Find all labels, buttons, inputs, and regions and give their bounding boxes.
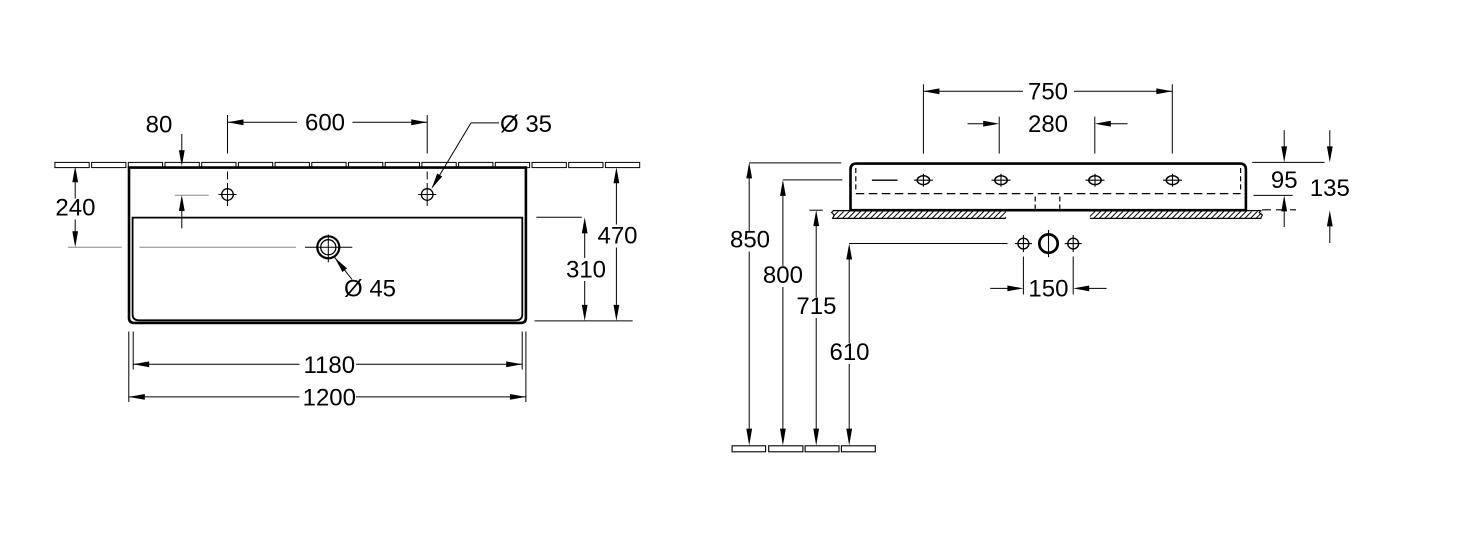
svg-text:715: 715 bbox=[796, 293, 836, 320]
svg-text:240: 240 bbox=[55, 195, 95, 222]
svg-text:800: 800 bbox=[763, 262, 803, 289]
svg-text:1180: 1180 bbox=[303, 352, 355, 379]
svg-text:80: 80 bbox=[146, 111, 173, 138]
svg-text:470: 470 bbox=[597, 223, 637, 250]
svg-text:150: 150 bbox=[1028, 276, 1068, 303]
svg-text:750: 750 bbox=[1028, 79, 1068, 106]
svg-text:280: 280 bbox=[1028, 111, 1068, 138]
svg-text:Ø 35: Ø 35 bbox=[500, 111, 552, 138]
svg-text:850: 850 bbox=[730, 227, 770, 254]
svg-text:135: 135 bbox=[1310, 175, 1350, 202]
svg-text:610: 610 bbox=[829, 339, 869, 366]
svg-text:600: 600 bbox=[305, 110, 345, 137]
svg-text:95: 95 bbox=[1271, 167, 1298, 194]
svg-text:1200: 1200 bbox=[303, 384, 356, 411]
svg-text:310: 310 bbox=[566, 256, 606, 283]
